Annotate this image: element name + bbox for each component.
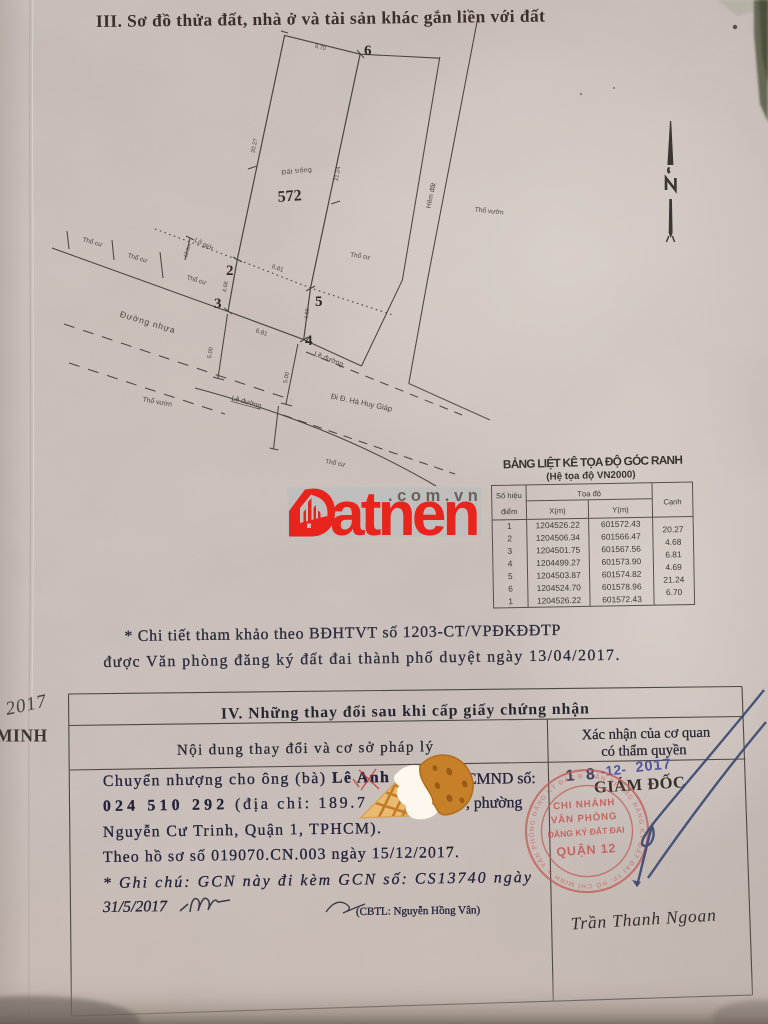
svg-text:có thẩm quyền: có thẩm quyền — [601, 742, 687, 760]
svg-text:4: 4 — [305, 333, 313, 349]
svg-text:Xác nhận của cơ quan: Xác nhận của cơ quan — [582, 725, 711, 744]
svg-text:CMND số:: CMND số: — [466, 770, 536, 788]
svg-text:Y(m): Y(m) — [612, 505, 629, 514]
svg-text:1204503.87: 1204503.87 — [536, 570, 581, 581]
svg-text:601578.96: 601578.96 — [602, 581, 642, 592]
svg-text:1204524.70: 1204524.70 — [537, 582, 582, 593]
svg-text:572: 572 — [277, 187, 302, 206]
svg-text:601566.47: 601566.47 — [601, 531, 641, 542]
svg-text:6.81: 6.81 — [665, 549, 682, 559]
svg-text:Số hiệu: Số hiệu — [496, 491, 522, 500]
svg-text:MINH: MINH — [0, 726, 48, 746]
svg-text:4.69: 4.69 — [665, 562, 682, 572]
svg-text:5: 5 — [315, 294, 323, 310]
svg-text:20.27: 20.27 — [662, 524, 683, 534]
svg-text:601572.43: 601572.43 — [602, 594, 642, 605]
svg-text:601567.56: 601567.56 — [601, 544, 641, 555]
svg-text:4.68: 4.68 — [665, 537, 682, 547]
svg-text:601573.90: 601573.90 — [601, 556, 641, 567]
svg-text:6: 6 — [364, 43, 372, 59]
svg-text:1204501.75: 1204501.75 — [536, 545, 581, 556]
svg-text:Cạnh: Cạnh — [663, 497, 681, 506]
svg-text:6.70: 6.70 — [666, 587, 683, 597]
svg-text:, phường: , phường — [466, 794, 523, 812]
svg-text:601574.82: 601574.82 — [602, 569, 642, 580]
svg-text:Tọa độ: Tọa độ — [577, 489, 601, 498]
svg-text:1204499.27: 1204499.27 — [536, 557, 581, 568]
svg-text:điểm: điểm — [501, 507, 518, 516]
svg-text:1: 1 — [507, 521, 512, 531]
svg-text:3: 3 — [507, 546, 512, 556]
svg-text:2: 2 — [226, 263, 234, 279]
svg-text:601572.43: 601572.43 — [601, 519, 641, 530]
svg-text:31/5/2017: 31/5/2017 — [102, 898, 168, 916]
svg-text:6: 6 — [508, 584, 513, 594]
svg-text:5: 5 — [508, 571, 513, 581]
svg-text:1204506.34: 1204506.34 — [536, 532, 581, 543]
svg-text:1204526.22: 1204526.22 — [537, 595, 582, 606]
svg-text:(CBTL: Nguyễn Hồng Vân): (CBTL: Nguyễn Hồng Vân) — [356, 904, 481, 918]
svg-text:21.24: 21.24 — [663, 574, 684, 584]
svg-text:X(m): X(m) — [549, 506, 566, 515]
svg-text:4: 4 — [508, 558, 513, 568]
svg-text:(Hệ tọa độ VN2000): (Hệ tọa độ VN2000) — [546, 469, 636, 482]
svg-text:3: 3 — [214, 296, 222, 312]
svg-text:2: 2 — [507, 533, 512, 543]
svg-text:1: 1 — [508, 596, 513, 606]
svg-text:1204526.22: 1204526.22 — [535, 520, 580, 531]
